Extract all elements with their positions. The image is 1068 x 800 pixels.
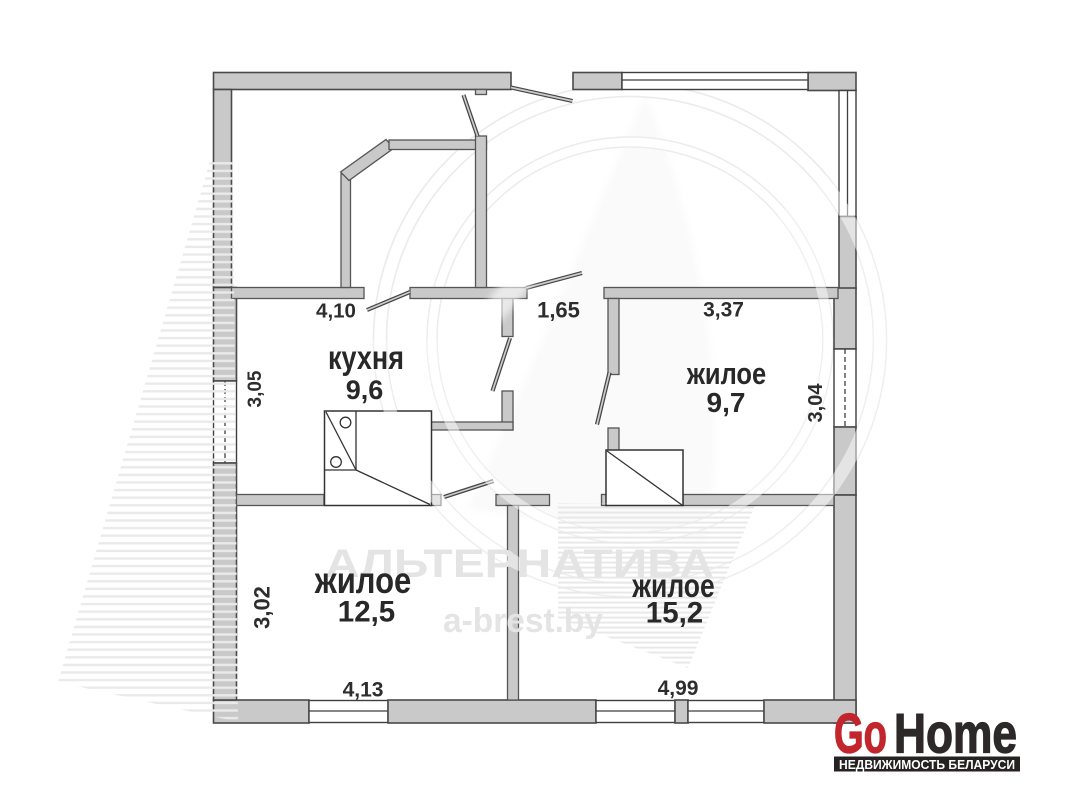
svg-text:НЕДВИЖИМОСТЬ БЕЛАРУСИ: НЕДВИЖИМОСТЬ БЕЛАРУСИ	[839, 757, 1015, 772]
svg-text:Home: Home	[894, 702, 1017, 765]
svg-text:4,13: 4,13	[343, 679, 384, 702]
svg-text:кухня: кухня	[328, 339, 404, 377]
svg-text:3,04: 3,04	[805, 383, 827, 423]
svg-text:15,2: 15,2	[646, 597, 703, 630]
svg-text:4,10: 4,10	[316, 300, 356, 323]
svg-text:9,6: 9,6	[346, 375, 384, 405]
svg-text:4,99: 4,99	[658, 677, 699, 700]
svg-text:9,7: 9,7	[707, 387, 746, 418]
svg-text:Go: Go	[834, 702, 887, 765]
svg-text:a-brest.by: a-brest.by	[443, 602, 603, 640]
svg-text:жилое: жилое	[686, 357, 766, 391]
svg-text:1,65: 1,65	[537, 298, 580, 323]
svg-text:3,02: 3,02	[250, 586, 275, 629]
svg-text:3,37: 3,37	[703, 299, 744, 322]
svg-text:3,05: 3,05	[245, 370, 266, 407]
svg-text:12,5: 12,5	[338, 596, 395, 629]
